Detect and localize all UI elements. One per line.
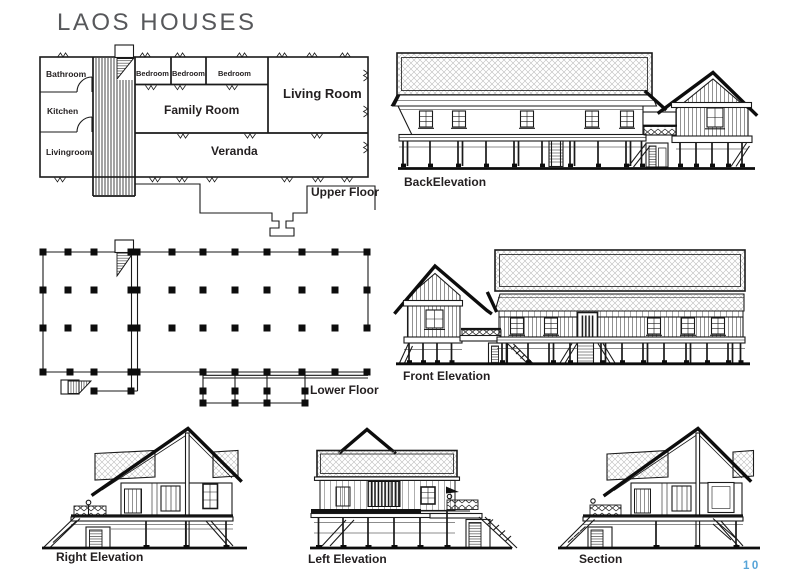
room-label-bedroom-2: Bedroom — [172, 70, 205, 78]
front-elevation-drawing — [396, 250, 751, 364]
left-roof — [315, 430, 460, 481]
upper-floor-plan-drawing — [40, 45, 375, 236]
room-label-kitchen: Kitchen — [47, 107, 78, 116]
caption-left-elevation: Left Elevation — [308, 553, 387, 565]
left-elevation-drawing — [310, 430, 517, 549]
back-stilts — [399, 141, 750, 167]
room-label-livingroom: Livingroom — [46, 148, 92, 157]
back-elevation-drawing — [391, 53, 757, 169]
back-main-wall — [398, 106, 676, 136]
room-label-family-room: Family Room — [164, 104, 239, 116]
right-elevation-drawing — [42, 429, 247, 549]
caption-back-elevation: BackElevation — [404, 176, 486, 188]
room-label-bathroom: Bathroom — [46, 70, 86, 79]
lower-floor-plan-drawing — [40, 240, 371, 407]
room-label-bedroom-3: Bedroom — [218, 70, 251, 78]
caption-section: Section — [579, 553, 622, 565]
front-roof — [488, 250, 745, 311]
drawing-sheet: LAOS HOUSES — [0, 0, 800, 584]
right-roof-panel-left — [95, 451, 155, 481]
caption-upper-floor: Upper Floor — [311, 186, 379, 198]
section-drawing — [558, 429, 760, 549]
right-wall — [121, 483, 232, 515]
room-label-living-room: Living Room — [283, 87, 362, 100]
caption-right-elevation: Right Elevation — [56, 551, 143, 563]
caption-front-elevation: Front Elevation — [403, 370, 490, 382]
back-roof — [391, 53, 657, 106]
page-number: 10 — [743, 560, 761, 572]
room-label-bedroom-1: Bedroom — [136, 70, 169, 78]
room-label-veranda: Veranda — [211, 145, 258, 157]
section-wall — [631, 483, 742, 516]
caption-lower-floor: Lower Floor — [310, 384, 379, 396]
left-wall — [320, 480, 459, 510]
architectural-line-art — [0, 0, 800, 584]
